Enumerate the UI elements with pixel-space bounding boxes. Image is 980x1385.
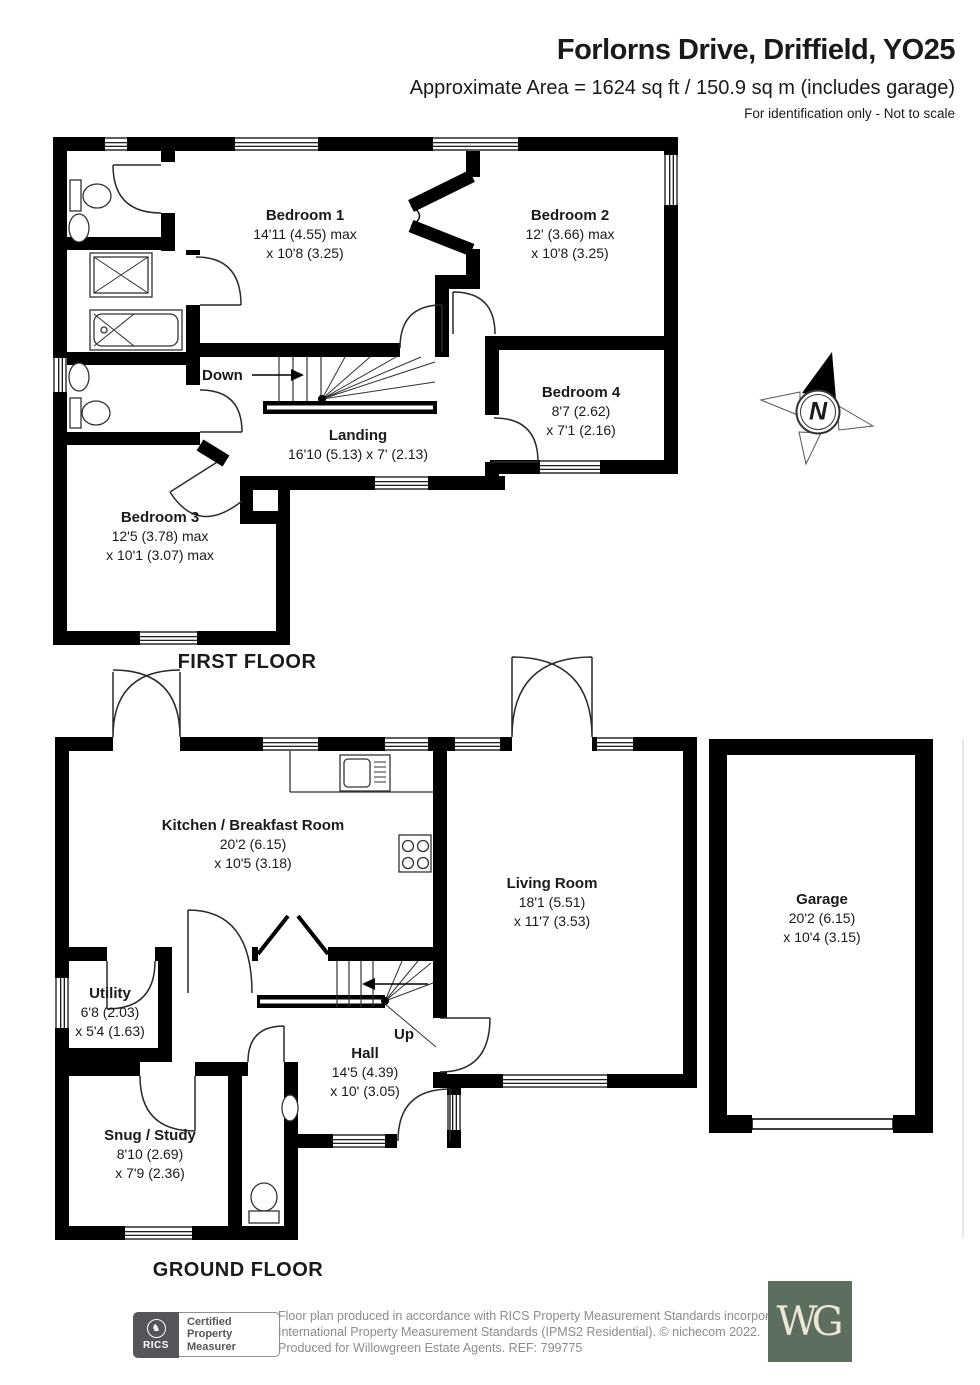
sink-icon: [69, 363, 89, 391]
wc-door: [248, 1026, 284, 1062]
room-label-snug: Snug / Study 8'10 (2.69) x 7'9 (2.36): [104, 1126, 196, 1183]
first-floor-title: FIRST FLOOR: [178, 651, 317, 674]
page-title: Forlorns Drive, Driffield, YO25: [557, 34, 955, 67]
sink-icon: [69, 214, 89, 242]
floorplan-page: { "header": { "title": "Forlorns Drive, …: [0, 0, 980, 1385]
willowgreen-logo: WG: [768, 1281, 852, 1362]
room-label-kitchen: Kitchen / Breakfast Room 20'2 (6.15) x 1…: [162, 816, 345, 873]
area-subtitle: Approximate Area = 1624 sq ft / 150.9 sq…: [410, 77, 955, 100]
bedroom1-nook: [411, 176, 472, 250]
stairs-down-label: Down: [202, 367, 243, 384]
room-label-landing: Landing 16'10 (5.13) x 7' (2.13): [288, 426, 428, 464]
toilet-icon: [251, 1183, 277, 1211]
compass-north-label: N: [809, 398, 827, 427]
living-door: [440, 1018, 490, 1072]
snug-door: [140, 1076, 195, 1131]
kitchen-double-doors: [258, 916, 328, 954]
toilet-icon: [70, 398, 81, 428]
room-label-bedroom4: Bedroom 4 8'7 (2.62) x 7'1 (2.16): [542, 383, 620, 440]
ground-floor-title: GROUND FLOOR: [153, 1259, 323, 1282]
room-label-utility: Utility 6'8 (2.03) x 5'4 (1.63): [75, 984, 145, 1041]
first-floor-stairs: [252, 357, 437, 414]
bedroom3-diagonal-wall: [200, 445, 226, 461]
rics-lion-icon: ♞: [147, 1319, 166, 1338]
kitchen-door: [188, 910, 252, 993]
front-door: [398, 1089, 450, 1141]
french-doors-kitchen: [113, 670, 180, 737]
room-label-bedroom2: Bedroom 2 12' (3.66) max x 10'8 (3.25): [525, 206, 614, 263]
rics-certified-badge: ♞ RICS Certified Property Measurer: [133, 1312, 280, 1358]
up-arrow-icon: [362, 978, 375, 990]
disclaimer-text: Floor plan produced in accordance with R…: [278, 1308, 796, 1356]
room-label-bedroom3: Bedroom 3 12'5 (3.78) max x 10'1 (3.07) …: [106, 508, 214, 565]
toilet-icon: [70, 180, 81, 211]
room-label-bedroom1: Bedroom 1 14'11 (4.55) max x 10'8 (3.25): [253, 206, 357, 263]
garage-door: [752, 1119, 893, 1129]
identification-note: For identification only - Not to scale: [744, 106, 955, 121]
room-label-garage: Garage 20'2 (6.15) x 10'4 (3.15): [783, 890, 860, 947]
room-label-hall: Hall 14'5 (4.39) x 10' (3.05): [330, 1044, 400, 1101]
rics-brand: RICS: [143, 1340, 169, 1351]
room-label-living: Living Room 18'1 (5.51) x 11'7 (3.53): [507, 874, 598, 931]
stairs-up-label: Up: [394, 1026, 414, 1043]
french-doors-living: [512, 657, 592, 737]
down-arrow-icon: [291, 369, 304, 381]
landing-alcove: [253, 490, 278, 511]
wg-logo-text: WG: [776, 1299, 843, 1345]
sink-icon: [282, 1095, 298, 1121]
